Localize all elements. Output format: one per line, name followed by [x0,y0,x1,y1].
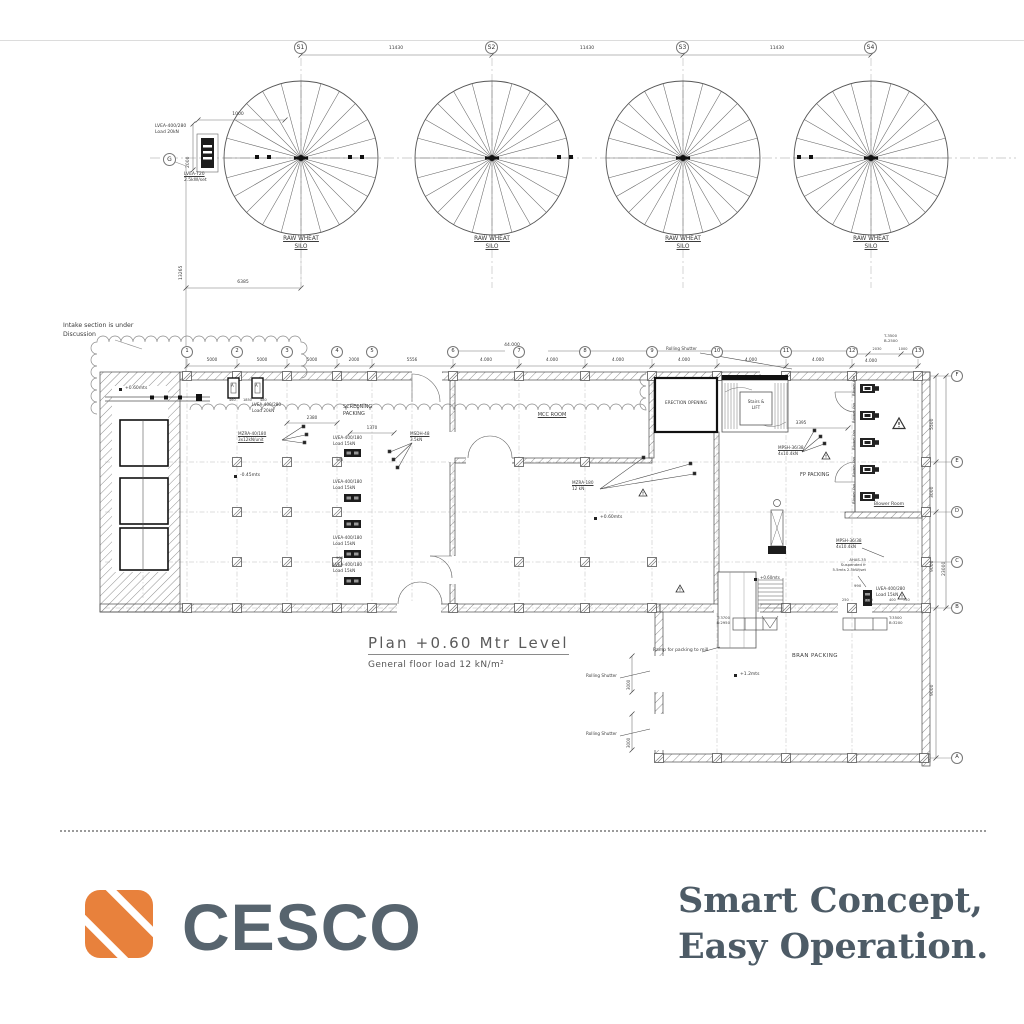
grid-bubble-s2: S2 [485,41,498,54]
equip-label: 12 kN [572,487,584,492]
level-label: +0.60mts [600,515,622,520]
equip-label: Load 15kN [333,542,355,547]
dim-label: 5000 [247,358,277,363]
plan-subtitle: General floor load 12 kN/m² [368,660,504,670]
footer-divider [60,830,986,832]
grid-bubble-row: E [951,456,963,468]
dim-label: 900 [336,458,343,462]
grid-bubble-col: 13 [912,346,924,358]
equip-label: 4x10.4kN [836,545,856,550]
walls [100,371,930,766]
brand-wordmark: CESCO [182,889,422,965]
dim-label: 900 [336,556,343,560]
equip-label: Blower fan [852,484,856,504]
equip-label: 4x10.4kN [778,452,798,457]
dim-label: 4.000 [471,358,501,363]
room-label: MCC ROOM [512,413,592,419]
grid-bubble-col: 5 [366,346,378,358]
equip-label: 3x12kN/unit [238,438,264,443]
equip-label: Load 15kN [333,486,355,491]
dim-label: 1850 [243,398,252,402]
silo-label: SILO [841,244,901,251]
room-label: FP PACKING [800,473,829,479]
dim-label: 1370 [357,426,387,431]
note-text: Intake section is under [63,322,133,329]
equip-label: Blower fan [852,457,856,477]
dim-label: 11430 [747,46,807,51]
dim-label: 250 [842,598,849,602]
grid-bubble-col: 9 [646,346,658,358]
equip-label: B:3200 [889,621,903,625]
room-label: Blower Room [858,502,920,507]
silo-drawing [150,53,1016,373]
room-label: LIFT [741,406,771,411]
dim-label: 5000 [297,358,327,363]
silo-label: RAW WHEAT [841,236,901,243]
dim-label: 6385 [213,280,273,285]
dim-label: 750 [903,598,910,602]
room-label: ERECTION OPENING [657,401,715,406]
equip-label: B:2950 [700,621,730,625]
level-label: +1.2mts [740,672,759,677]
grid-bubble-g: G [163,153,176,166]
room-label: BRAN PACKING [792,653,838,659]
silo-label: RAW WHEAT [653,236,713,243]
equip-label: Blower fan [852,376,856,396]
equip-label: Load 15kN [333,442,355,447]
dim-label: 4.000 [537,358,567,363]
grid-bubble-row: D [951,506,963,518]
equip-label: Blower fan [852,403,856,423]
grid-bubble-s4: S4 [864,41,877,54]
columns [183,372,931,763]
grid-bubble-col: 2 [231,346,243,358]
grid-bubble-col: 12 [846,346,858,358]
dim-label: 480 [260,398,267,402]
dim-label: 3000 [627,680,632,690]
grid-bubble-col: 7 [513,346,525,358]
dim-label: 4.000 [669,358,699,363]
dim-label: 2030 [867,347,887,351]
level-label: -0.45mts [240,473,260,478]
tagline-line1: Smart Concept, [678,880,983,921]
grid-bubble-col: 8 [579,346,591,358]
grid-bubble-col: 4 [331,346,343,358]
silo-label: SILO [462,244,522,251]
equip-label: LVEA-T20 [184,172,205,177]
dim-label: 1000 [895,347,911,351]
dim-label: 460 [229,398,236,402]
dim-label: 2000 [186,157,191,168]
silo-label: SILO [271,244,331,251]
dim-label: B-2500 [884,339,898,343]
dim-label: 4.000 [856,359,886,364]
level-label: +0.60mts [760,576,780,581]
silo-label: SILO [653,244,713,251]
grid-bubble-col: 11 [780,346,792,358]
grid-bubble-col: 10 [711,346,723,358]
dim-label: 3000 [627,738,632,748]
dim-label: 13265 [179,266,184,280]
dim-label: 1000 [218,112,258,117]
equip-label: Load 20kN [252,409,274,414]
room-label: SCREENING [343,405,372,411]
dim-label: 11430 [557,46,617,51]
grid-lines [105,372,920,754]
grid-bubble-col: 1 [181,346,193,358]
dim-label: 4.000 [603,358,633,363]
dim-label: 2000 [339,358,369,363]
dim-label: 5556 [397,358,427,363]
note-text: Discussion [63,331,96,338]
dim-label: 3395 [786,421,816,426]
grid-bubble-row: C [951,556,963,568]
dim-label: 9000 [930,685,935,696]
tagline-line2: Easy Operation. [678,926,988,967]
callout-label: Rolling Shutter [586,732,617,737]
equip-label: Blower fan [852,430,856,450]
silo-label: RAW WHEAT [462,236,522,243]
dim-label: 400 [889,598,896,602]
dim-label: 5500 [930,419,935,430]
grid-bubble-row: B [951,602,963,614]
dim-label: 4.000 [803,358,833,363]
dim-label: 2750 [864,598,873,602]
drawing-linework [0,0,1024,1024]
equip-label: Load 20kN [155,130,179,135]
plan-title: Plan +0.60 Mtr Level [368,634,569,655]
grid-bubble-row: F [951,370,963,382]
dim-label: 990 [854,584,861,588]
callout-label: Rolling Shutter [666,347,697,352]
callout-label: Rolling Shutter [586,674,617,679]
dim-label: 9000 [930,561,935,572]
grid-bubble-col: 3 [281,346,293,358]
dim-label: 2380 [294,416,330,421]
equip-label: A [231,384,234,389]
silo-label: RAW WHEAT [271,236,331,243]
grid-bubble-s1: S1 [294,41,307,54]
equip-label: LVEA-400/280 [155,124,186,129]
grid-bubble-row: A [951,752,963,764]
leaders [282,353,884,736]
cesco-logo-mark [77,884,161,968]
level-label: +0.60mts [125,386,147,391]
callout-label: Ramp for packing to mill [653,648,708,653]
equip-label: 3.5kN [410,438,422,443]
grid-bubble-s3: S3 [676,41,689,54]
equip-label: Load 15kN [333,569,355,574]
dim-label: 3000 [930,487,935,498]
room-label: PACKING [343,412,365,418]
dim-label: 11430 [366,46,426,51]
dim-label: 5000 [197,358,227,363]
grid-bubble-col: 6 [447,346,459,358]
equip-label: 5.5mts 2.5kW/set [820,568,866,572]
dim-label: 23000 [942,562,947,576]
equip-label: 2.5kW/set [184,178,207,183]
dim-label: 4.000 [736,358,766,363]
equip-label: A [255,384,258,389]
